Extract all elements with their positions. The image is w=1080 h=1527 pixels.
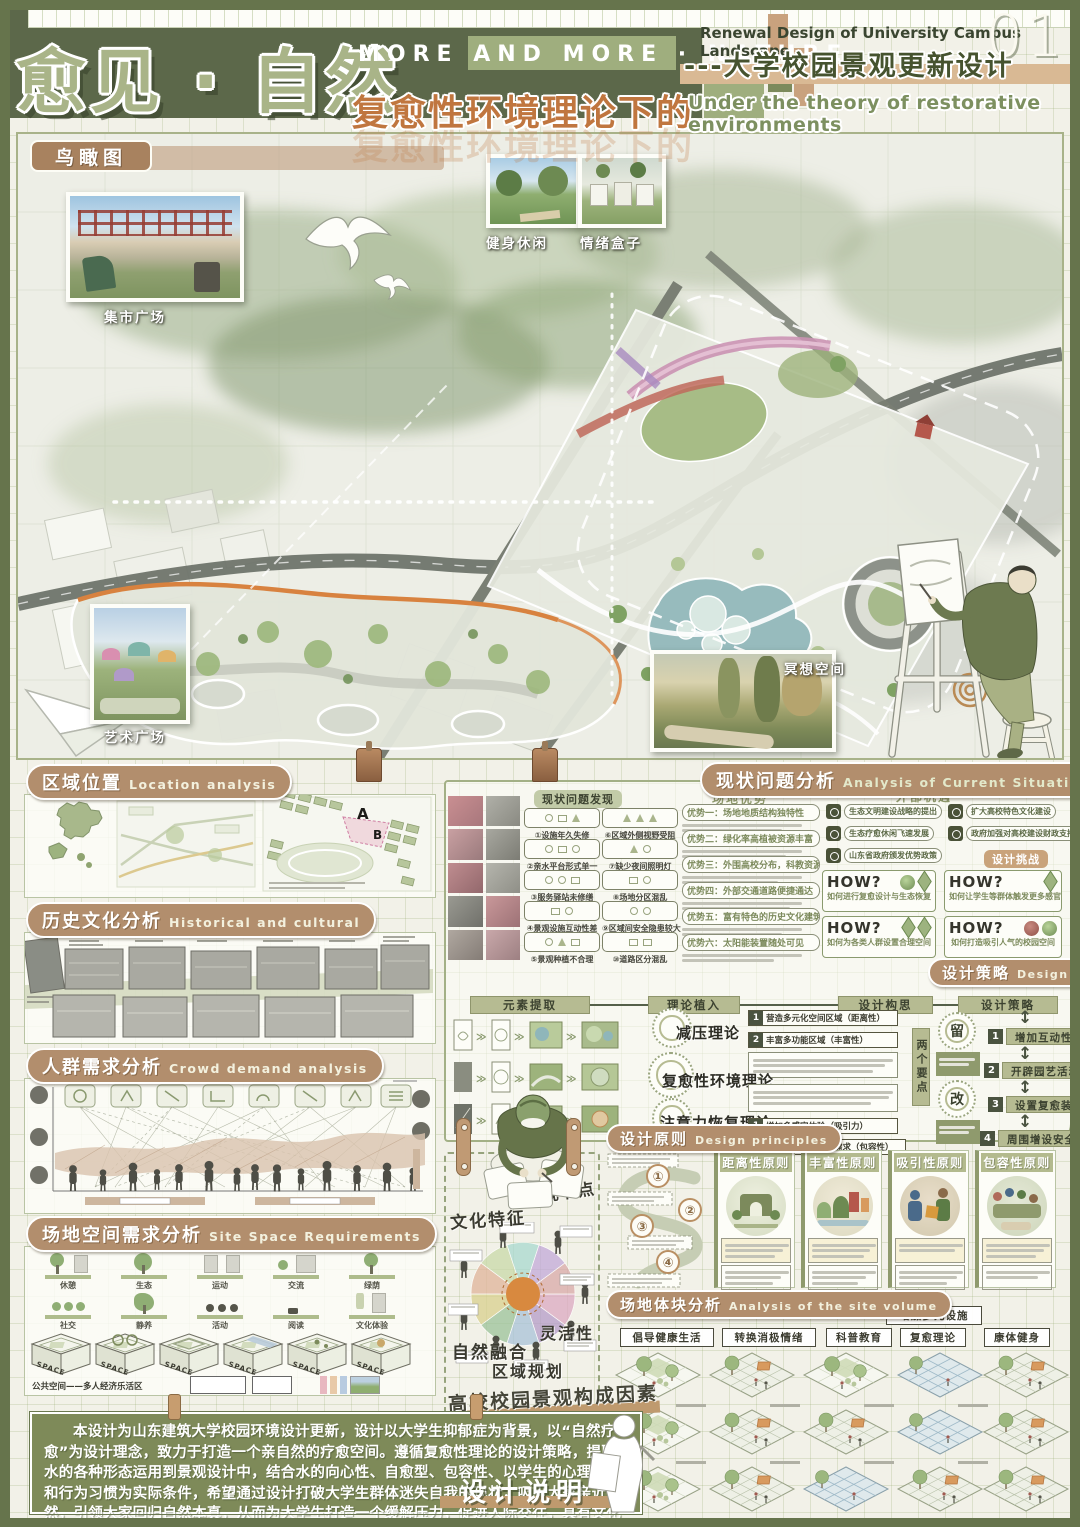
space-need-meet: 社交 bbox=[32, 1292, 104, 1331]
label-meditation: 冥想空间 bbox=[784, 658, 846, 678]
tile-caption-line bbox=[958, 1404, 988, 1407]
principle-card-richness: 丰富性原则 bbox=[801, 1150, 882, 1288]
change-circle: 改 bbox=[938, 1080, 976, 1118]
problem-icon-4 bbox=[524, 901, 600, 921]
marker-b: B bbox=[373, 828, 382, 842]
volume-tile bbox=[802, 1407, 890, 1462]
location-title-cn: 区域位置 bbox=[42, 769, 122, 795]
challenge-subtitle: 设计挑战 bbox=[984, 850, 1048, 868]
space-cube-2 bbox=[94, 1332, 156, 1378]
svg-text:≫: ≫ bbox=[566, 1032, 576, 1043]
tile-caption-line bbox=[864, 1461, 894, 1464]
history-panel bbox=[24, 932, 436, 1044]
problems-subtitle: 现状问题发现 bbox=[534, 790, 622, 808]
site-photo bbox=[448, 796, 483, 826]
problem-icon-6 bbox=[602, 808, 678, 828]
aerial-tag: 鸟瞰图 bbox=[30, 140, 152, 172]
space-cube-6 bbox=[350, 1332, 412, 1378]
problem-item: ⑨区域间安全隐患较大 bbox=[602, 901, 678, 934]
strategy-item: 1增加互动性水景 bbox=[988, 1028, 1080, 1045]
tile-caption-line bbox=[958, 1461, 988, 1464]
challenge-box: HOW? 如何让学生等群体触发更多感官 bbox=[944, 870, 1062, 912]
space-need-activity: 活动 bbox=[184, 1292, 256, 1331]
strategy-col-header: 元素提取 bbox=[470, 996, 590, 1014]
crowd-title-cn: 人群需求分析 bbox=[42, 1053, 162, 1079]
aerial-view: 鸟瞰图 集市广场 健身休闲 bbox=[16, 132, 1064, 760]
tile-caption-line bbox=[676, 1461, 706, 1464]
sitespace-title-cn: 场地空间需求分析 bbox=[42, 1221, 202, 1247]
aerial-tag-label: 鸟瞰图 bbox=[55, 143, 127, 170]
sitespace-title-en: Site Space Requirements bbox=[209, 1229, 421, 1244]
location-title-en: Location analysis bbox=[129, 777, 276, 792]
space-legend-colors bbox=[320, 1376, 380, 1394]
mid-label-plan: 区域规划 bbox=[492, 1358, 564, 1382]
problem-icon-3 bbox=[524, 870, 600, 890]
svg-text:②: ② bbox=[684, 1204, 695, 1219]
section-history: 历史文化分析 Historical and cultural bbox=[26, 902, 376, 938]
volume-tile bbox=[896, 1464, 984, 1519]
volume-tile bbox=[896, 1407, 984, 1462]
space-caption: 公共空间——多人经济乐活区 bbox=[32, 1380, 143, 1392]
svg-text:≫: ≫ bbox=[476, 1032, 486, 1043]
clip-mid bbox=[532, 748, 558, 782]
building-icon bbox=[1024, 921, 1039, 936]
space-need-rest: 休憩 bbox=[32, 1252, 104, 1291]
challenge-box: HOW? 如何为各类人群设置合理空间 bbox=[822, 916, 936, 958]
page-title: 愈见 · 自然 bbox=[16, 26, 399, 127]
volume-tile bbox=[896, 1350, 984, 1405]
header-subtitle: 复愈性环境理论下的 bbox=[352, 84, 694, 136]
principles-title-cn: 设计原则 bbox=[620, 1128, 688, 1149]
location-panel: A B bbox=[24, 794, 436, 898]
principles-title-en: Design principles bbox=[695, 1134, 828, 1147]
person-icon bbox=[1043, 870, 1057, 892]
inset-market-photo bbox=[66, 192, 244, 302]
site-photo bbox=[448, 930, 483, 960]
section-principles: 设计原则 Design principles bbox=[606, 1124, 842, 1153]
label-market: 集市广场 bbox=[104, 306, 166, 326]
problem-icon-1 bbox=[524, 808, 600, 828]
advantage-item: 优势六：太阳能装置随处可见 bbox=[682, 934, 820, 965]
site-photo bbox=[448, 829, 483, 859]
crowd-diagram bbox=[25, 1079, 433, 1211]
label-fitness: 健身休闲 bbox=[486, 232, 548, 252]
theory-1: 减压理论 bbox=[676, 1022, 740, 1043]
problem-item: ⑤景观种植不合理 bbox=[524, 932, 600, 965]
section-volume: 场地体块分析 Analysis of the site volume bbox=[606, 1290, 952, 1319]
problem-item: ⑧场地分区混乱 bbox=[602, 870, 678, 903]
volume-tag: 倡导健康生活 bbox=[620, 1328, 714, 1347]
svg-text:③: ③ bbox=[636, 1220, 647, 1235]
challenge-box: HOW? 如何打造吸引人气的校园空间 bbox=[944, 916, 1062, 958]
volume-tag: 科普教育 bbox=[826, 1328, 892, 1347]
problem-icon-5 bbox=[524, 932, 600, 952]
volume-title-en: Analysis of the site volume bbox=[729, 1300, 938, 1313]
desc-clip-2 bbox=[470, 1394, 483, 1420]
problem-item: ④景观设施互动性差 bbox=[524, 901, 600, 934]
park-icon bbox=[917, 916, 931, 938]
site-photo bbox=[486, 863, 521, 893]
volume-tile bbox=[708, 1464, 796, 1519]
problem-icon-9 bbox=[602, 901, 678, 921]
change-note bbox=[936, 1120, 980, 1144]
svg-text:④: ④ bbox=[662, 1256, 673, 1271]
strap-right bbox=[566, 1118, 581, 1176]
volume-tile bbox=[802, 1350, 890, 1405]
space-legend-box1 bbox=[190, 1376, 246, 1394]
description-box: 本设计为山东建筑大学校园环境设计更新，设计以大学生抑郁症为背景，以“自然疗愈”为… bbox=[30, 1412, 642, 1514]
tile-caption-line bbox=[864, 1404, 894, 1407]
crowd-panel bbox=[24, 1078, 436, 1214]
volume-tile bbox=[708, 1407, 796, 1462]
clip-left bbox=[356, 748, 382, 782]
volume-tag: 复愈理论 bbox=[900, 1328, 966, 1347]
space-need-calm: 静养 bbox=[108, 1292, 180, 1331]
figure-silhouette bbox=[588, 1412, 658, 1516]
history-title-en: Historical and cultural bbox=[169, 915, 360, 930]
keep-note bbox=[936, 1052, 980, 1076]
culture-icon bbox=[948, 804, 963, 819]
section-issues: 现状问题分析 Analysis of Current Situation Iss… bbox=[700, 762, 1080, 798]
section-location: 区域位置 Location analysis bbox=[26, 764, 292, 800]
theory-paragraph bbox=[748, 1084, 898, 1112]
problem-item: ③服务驿站未修缮 bbox=[524, 870, 600, 903]
history-title-cn: 历史文化分析 bbox=[42, 907, 162, 933]
section-sitespace: 场地空间需求分析 Site Space Requirements bbox=[26, 1216, 437, 1252]
volume-tile bbox=[982, 1350, 1070, 1405]
volume-tile bbox=[708, 1350, 796, 1405]
svg-text:≫: ≫ bbox=[514, 1032, 524, 1043]
volume-tag: 康体健身 bbox=[984, 1328, 1050, 1347]
desc-clip-1 bbox=[168, 1394, 181, 1420]
theory1-item: 1营造多元化空间区域（距离性） bbox=[748, 1010, 898, 1026]
strategy-item: 3设置复愈装置 bbox=[988, 1096, 1080, 1113]
opportunity-item: 生态疗愈休闲飞速发展 bbox=[826, 826, 934, 841]
volume-tag: 转换消极情绪 bbox=[722, 1328, 816, 1347]
problem-item: ⑦缺少夜间照明灯 bbox=[602, 839, 678, 872]
healing-icon bbox=[826, 826, 841, 841]
site-photo bbox=[448, 896, 483, 926]
opportunity-item: 山东省政府颁发优势政策 bbox=[826, 848, 942, 863]
problem-item: ②亲水平台形式单一 bbox=[524, 839, 600, 872]
tile-caption-line bbox=[770, 1404, 800, 1407]
strategy-pivot: 两个要点 bbox=[912, 1028, 930, 1106]
principle-card-attraction: 吸引性原则 bbox=[888, 1150, 969, 1288]
site-photo bbox=[486, 930, 521, 960]
updown-arrow: ↕ bbox=[1018, 1010, 1032, 1027]
opportunity-item: 生态文明建设战略的提出 bbox=[826, 804, 942, 819]
leaf-icon bbox=[1042, 921, 1057, 936]
problem-item: ⑥区域外侧视野受阻 bbox=[602, 808, 678, 841]
header-en-subtitle: Under the theory of restorative environm… bbox=[688, 92, 1080, 136]
volume-tile bbox=[802, 1464, 890, 1519]
space-need-social: 交流 bbox=[260, 1252, 332, 1291]
tile-caption-line bbox=[770, 1461, 800, 1464]
header-cn-title: ---大学校园景观更新设计 bbox=[684, 44, 1014, 83]
space-need-reading: 阅读 bbox=[260, 1292, 332, 1331]
site-photo bbox=[486, 896, 521, 926]
problem-icon-8 bbox=[602, 870, 678, 890]
tile-caption-line bbox=[676, 1404, 706, 1407]
volume-title-cn: 场地体块分析 bbox=[620, 1294, 722, 1315]
keep-circle: 留 bbox=[938, 1012, 976, 1050]
space-cube-3 bbox=[158, 1332, 220, 1378]
strategy-item: 4周围增设安全性代替措施 bbox=[980, 1130, 1080, 1147]
site-photo bbox=[486, 829, 521, 859]
issues-photo-strip bbox=[448, 796, 520, 960]
site-photo bbox=[448, 863, 483, 893]
site-photo bbox=[486, 796, 521, 826]
space-legend-box2 bbox=[252, 1376, 292, 1394]
updown-arrow: ↕ bbox=[1018, 1046, 1032, 1063]
problem-icon-10 bbox=[602, 932, 678, 952]
inset-art-photo bbox=[90, 604, 190, 724]
mid-label-flex: 灵活性 bbox=[540, 1320, 594, 1344]
space-cube-5 bbox=[286, 1332, 348, 1378]
volume-tile bbox=[982, 1464, 1070, 1519]
section-strategy: 设计策略 Design strategies bbox=[928, 958, 1080, 987]
svg-text:①: ① bbox=[652, 1170, 663, 1185]
label-emotion: 情绪盒子 bbox=[580, 232, 642, 252]
challenge-box: HOW? 如何进行复愈设计与生态恢复 bbox=[822, 870, 936, 912]
issues-title-en: Analysis of Current Situation Issues bbox=[843, 775, 1080, 790]
principle-card-distance: 距离性原则 bbox=[714, 1150, 795, 1288]
section-crowd: 人群需求分析 Crowd demand analysis bbox=[26, 1048, 384, 1084]
principle-card-inclusive: 包容性原则 bbox=[975, 1150, 1056, 1288]
marker-a: A bbox=[357, 805, 369, 823]
strap-left bbox=[456, 1118, 471, 1176]
finance-icon bbox=[948, 826, 963, 841]
problem-item: ⑩道路区分混乱 bbox=[602, 932, 678, 965]
theory1-item: 2丰富多功能区域（丰富性） bbox=[748, 1032, 898, 1048]
field-icon bbox=[917, 870, 931, 892]
issues-title-cn: 现状问题分析 bbox=[716, 767, 836, 793]
updown-arrow: ↕ bbox=[1018, 1114, 1032, 1131]
history-diagram bbox=[25, 933, 433, 1041]
strategy-title-cn: 设计策略 bbox=[942, 962, 1010, 983]
strategy-col-header: 设计策略 bbox=[958, 996, 1058, 1014]
poster-root: 愈见 · 自然 MORE AND MORE · NATURE 复愈性环境理论下的… bbox=[0, 0, 1080, 1527]
problem-item: ①设施年久失修 bbox=[524, 808, 600, 841]
space-need-sport: 运动 bbox=[184, 1252, 256, 1291]
space-need-eco: 生态 bbox=[108, 1252, 180, 1291]
opportunity-item: 政府加强对高校建设财政支持 bbox=[948, 826, 1080, 841]
crowd-title-en: Crowd demand analysis bbox=[169, 1061, 368, 1076]
space-cube-1 bbox=[30, 1332, 92, 1378]
space-need-shade: 绿荫 bbox=[336, 1252, 408, 1291]
updown-arrow: ↕ bbox=[1018, 1080, 1032, 1097]
strategy-item: 2开辟园艺活动的操作区域 bbox=[984, 1062, 1080, 1079]
eco-icon bbox=[826, 804, 841, 819]
volume-tile bbox=[982, 1407, 1070, 1462]
location-diagram: A B bbox=[25, 795, 433, 895]
city-icon bbox=[900, 875, 915, 890]
principles-flow: ① ② ③ ④ bbox=[606, 1150, 710, 1290]
opportunity-item: 扩大高校特色文化建设 bbox=[948, 804, 1056, 819]
camera-icon bbox=[901, 916, 915, 938]
label-art: 艺术广场 bbox=[104, 726, 166, 746]
space-cube-4 bbox=[222, 1332, 284, 1378]
problem-icon-2 bbox=[524, 839, 600, 859]
problem-icon-7 bbox=[602, 839, 678, 859]
space-need-culture: 文化体验 bbox=[336, 1292, 408, 1331]
policy-icon bbox=[826, 848, 841, 863]
description-title: 设计说明 bbox=[460, 1472, 588, 1509]
strategy-title-en: Design strategies bbox=[1017, 968, 1080, 981]
